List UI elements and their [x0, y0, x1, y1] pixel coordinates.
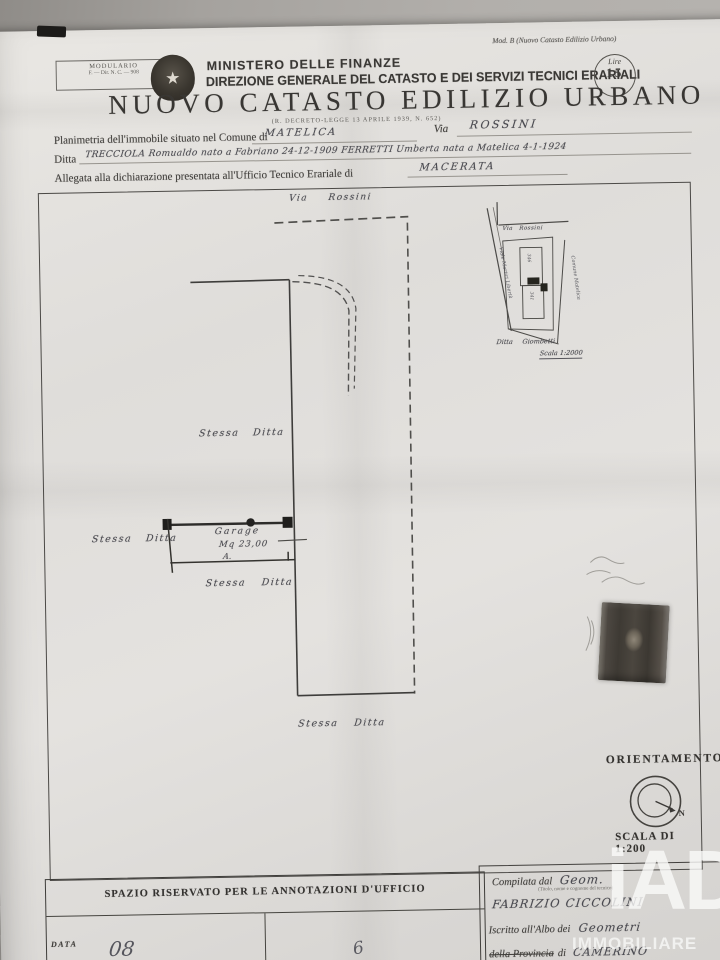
orientation-title: ORIENTAMENTO: [606, 752, 720, 766]
stessa-label-below-garage: Stessa Ditta: [205, 572, 293, 592]
stessa-line2: Ditta: [261, 577, 294, 589]
inset-ditta-label: Ditta Giombetti: [496, 330, 555, 349]
compiler-line3: della Provincia di CAMERINO: [489, 942, 648, 960]
form-allegata-value: MACERATA: [419, 161, 496, 173]
garage-name-label: Garage: [214, 526, 260, 537]
star-icon: ★: [165, 69, 181, 86]
inset-scale-label: Scala 1:2000: [539, 349, 583, 360]
plan-street-label: Via Rossini: [288, 192, 372, 203]
form-via-value: ROSSINI: [469, 117, 538, 131]
stessa-line1: Stessa: [298, 718, 340, 730]
stessa-line1: Stessa: [198, 428, 240, 440]
form-comune-label: Planimetria dell'immobile situato nel Co…: [54, 131, 268, 147]
inset-parcel-number: 341: [528, 292, 533, 301]
compiler-line2-label: Iscritto all'Albo dei: [489, 924, 571, 936]
lire-value: 15: [595, 66, 635, 81]
north-label: N: [679, 808, 685, 818]
compiler-line3-value: CAMERINO: [572, 945, 648, 959]
scanned-document-photo: Mod. B (Nuovo Catasto Edilizio Urbano) M…: [0, 0, 720, 960]
inset-ditta-line1: Ditta: [496, 338, 513, 346]
inset-street-label: Via Rossini: [502, 225, 543, 232]
compiler-line1-value: Geom.: [560, 872, 606, 887]
stessa-line1: Stessa: [205, 578, 247, 590]
form-allegata-label: Allegata alla dichiarazione presentata a…: [54, 168, 353, 185]
compiler-note: (Titolo, nome e cognome del tecnico): [538, 886, 613, 892]
inset-ditta-line2: Giombetti: [522, 337, 556, 346]
stessa-line2: Ditta: [146, 533, 179, 545]
compiler-line3-rest: di: [558, 948, 566, 959]
garage-area-label: Mq 23,00: [218, 539, 268, 550]
paper-sheet: Mod. B (Nuovo Catasto Edilizio Urbano) M…: [0, 19, 720, 960]
form-via-label: Via: [434, 123, 449, 135]
compass: [628, 774, 683, 829]
annotations-divider: [264, 913, 267, 960]
form-ditta-label: Ditta: [54, 153, 76, 165]
compiler-line3-strike: della Provincia: [489, 948, 554, 960]
stessa-line2: Ditta: [354, 717, 387, 729]
stessa-label-top: Stessa Ditta: [199, 422, 285, 441]
revenue-stamp: [598, 602, 670, 683]
form-rule: [408, 174, 568, 178]
compiler-line2: Iscritto all'Albo dei Geometri: [489, 918, 641, 939]
form-comune-value: MATELICA: [264, 127, 338, 139]
form-rule: [457, 132, 692, 137]
stessa-label-bottom: Stessa Ditta: [298, 712, 386, 732]
mod-b-label: Mod. B (Nuovo Catasto Edilizio Urbano): [492, 34, 616, 45]
annotation-scribble: 6: [352, 938, 366, 959]
data-label: DATA: [51, 940, 78, 949]
data-value-handwriting: 08: [108, 937, 136, 960]
annotations-box: SPAZIO RISERVATO PER LE ANNOTAZIONI D'UF…: [45, 871, 488, 960]
garage-sub-label: A.: [223, 552, 232, 561]
compiler-box: Compilata dal Geom. (Titolo, nome e cogn…: [479, 861, 720, 960]
stessa-label-left: Stessa Ditta: [92, 528, 178, 547]
compass-icon: [628, 774, 683, 829]
annotations-title: SPAZIO RISERVATO PER LE ANNOTAZIONI D'UF…: [46, 882, 484, 901]
stessa-line1: Stessa: [91, 533, 133, 545]
compiler-name: FABRIZIO CICCOLINI: [492, 895, 645, 912]
inset-map: Via Rossini Viale Martiri Libertà Comune…: [482, 191, 685, 366]
inset-parcel-number: 346: [526, 254, 531, 263]
scan-artifact-mark: [37, 25, 66, 37]
plan-scale-label: SCALA DI 1:200: [615, 830, 701, 855]
compiler-line2-value: Geometri: [578, 920, 642, 935]
plan-area: Via Rossini Stessa Ditta Stessa Ditta St…: [38, 182, 703, 881]
stessa-line2: Ditta: [253, 427, 286, 439]
